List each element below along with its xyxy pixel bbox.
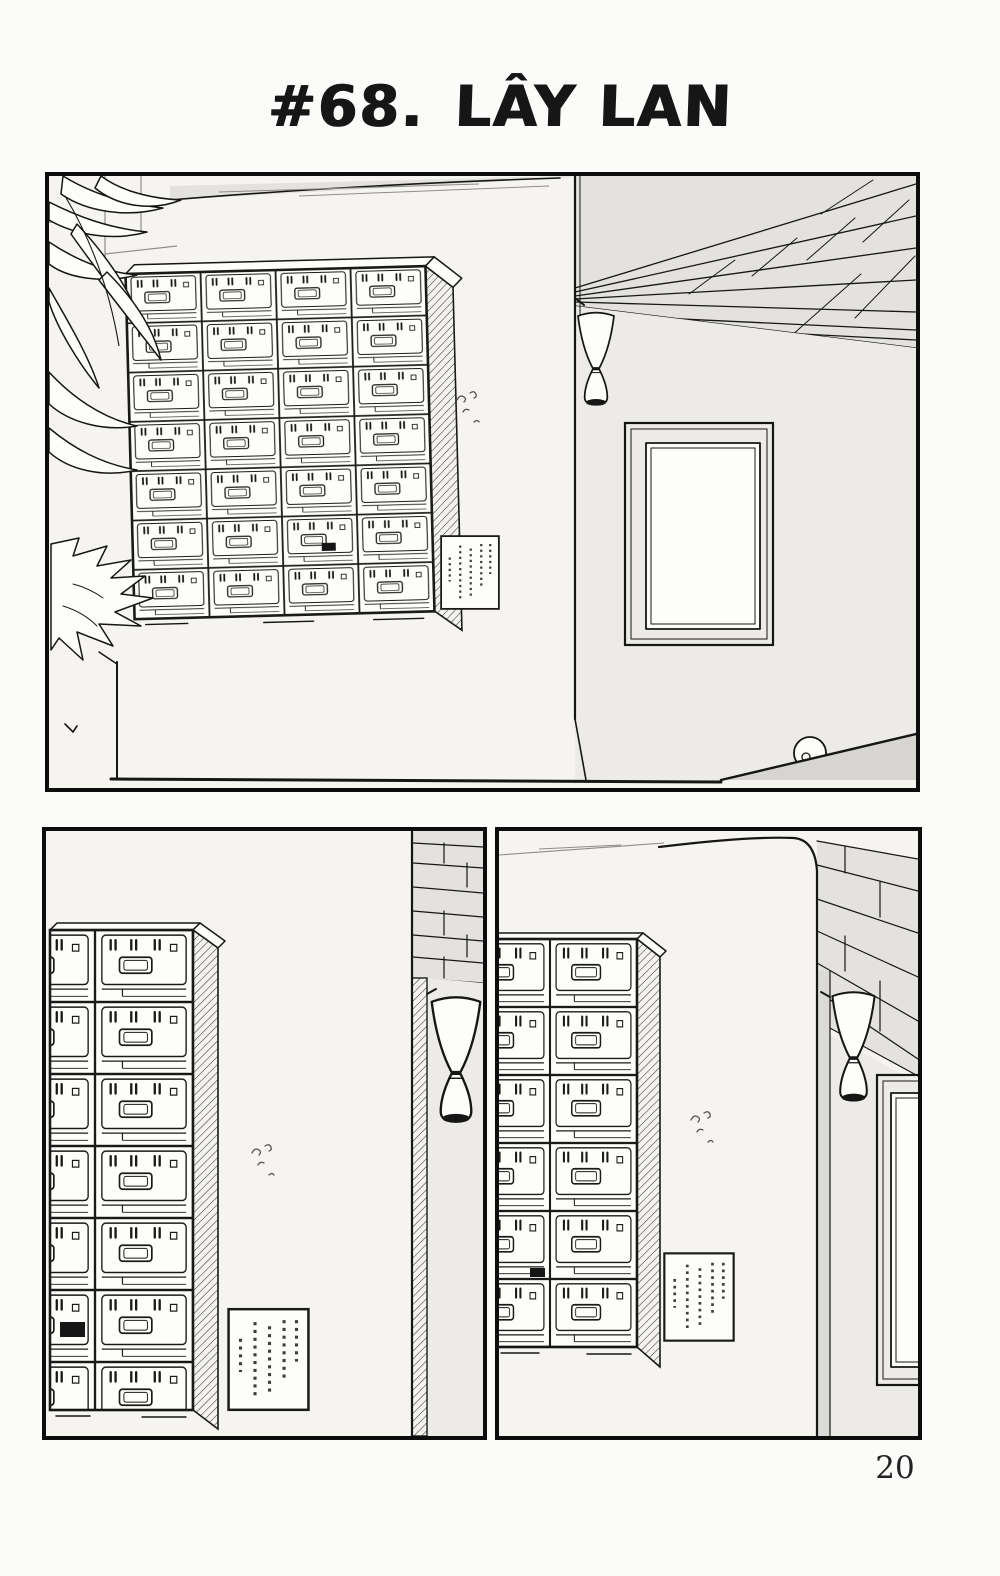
- notice-sign: [664, 1253, 733, 1340]
- chapter-number: #68.: [266, 74, 425, 140]
- locker-side-panel: [193, 930, 218, 1429]
- ink-smudge: [457, 392, 479, 422]
- notice-sign: [229, 1309, 309, 1410]
- open-slot: [530, 1268, 545, 1277]
- locker-side-panel: [637, 939, 660, 1367]
- page-number: 20: [840, 1450, 950, 1486]
- locker-grid: [499, 939, 637, 1347]
- manga-panel-bottom-left: [42, 827, 487, 1440]
- ceiling-left: [170, 176, 575, 200]
- ceiling-lines: [499, 843, 664, 855]
- window: [877, 1075, 918, 1385]
- wall-pillar: [659, 838, 830, 1436]
- locker-cabinet: [499, 933, 666, 1367]
- notice-sign: [441, 536, 499, 609]
- panel-bl-art: [46, 831, 483, 1436]
- manga-panel-bottom-right: [495, 827, 922, 1440]
- locker-cabinet: [125, 256, 471, 639]
- chapter-title: #68.LÂY LAN: [0, 74, 1000, 140]
- chapter-name: LÂY LAN: [453, 74, 734, 140]
- manga-panel-top: [45, 172, 920, 792]
- panel-top-art: [49, 176, 916, 788]
- locker-grid: [126, 266, 435, 619]
- open-slot: [60, 1322, 85, 1337]
- ink-smudge: [252, 1145, 274, 1175]
- locker-cabinet: [50, 923, 225, 1429]
- open-slot: [322, 543, 336, 551]
- manga-page: { "page": { "title_prefix": "#68.", "tit…: [0, 0, 1000, 1576]
- panel-br-art: [499, 831, 918, 1436]
- window: [625, 423, 773, 645]
- locker-grid: [50, 930, 193, 1410]
- ceiling-grid: [413, 831, 483, 983]
- ink-smudge: [691, 1112, 713, 1142]
